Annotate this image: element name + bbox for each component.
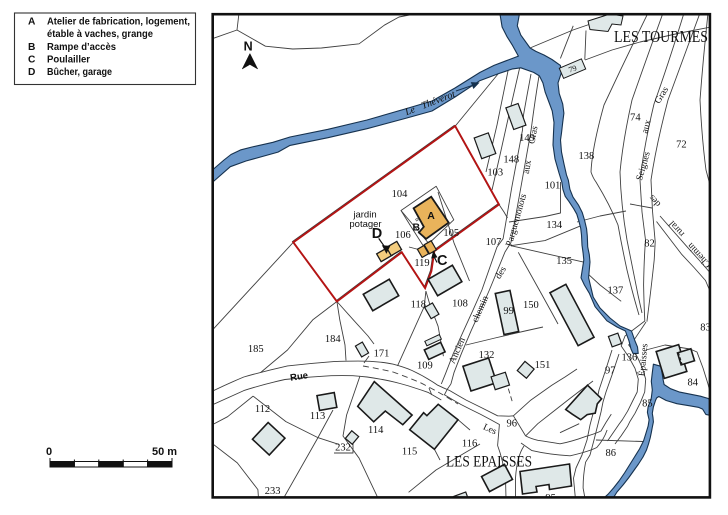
svg-text:C: C — [28, 55, 36, 66]
svg-text:Gras: Gras — [528, 125, 541, 145]
svg-text:107: 107 — [486, 237, 502, 248]
svg-text:Rue: Rue — [289, 370, 308, 384]
svg-text:116: 116 — [462, 438, 477, 449]
svg-text:C: C — [437, 253, 448, 269]
svg-text:106: 106 — [395, 230, 411, 241]
svg-text:233: 233 — [265, 486, 281, 497]
svg-text:132: 132 — [479, 350, 495, 361]
svg-text:232: 232 — [335, 442, 351, 453]
svg-text:Gras: Gras — [653, 85, 671, 106]
svg-text:114: 114 — [368, 425, 384, 436]
svg-text:101: 101 — [545, 180, 561, 191]
svg-text:des: des — [494, 265, 509, 281]
svg-text:99: 99 — [503, 306, 514, 317]
svg-text:118: 118 — [411, 299, 426, 310]
svg-text:113: 113 — [310, 411, 325, 422]
svg-text:138: 138 — [579, 151, 595, 162]
svg-text:Bûcher, garage: Bûcher, garage — [47, 67, 112, 78]
svg-text:LES EPAISSES: LES EPAISSES — [446, 454, 532, 471]
svg-text:A: A — [427, 210, 435, 222]
svg-text:135: 135 — [556, 256, 572, 267]
svg-text:105: 105 — [443, 228, 459, 239]
svg-text:115: 115 — [402, 446, 417, 457]
svg-text:Parguemonots: Parguemonots — [505, 193, 530, 248]
svg-text:134: 134 — [546, 220, 563, 231]
svg-text:96: 96 — [507, 419, 518, 430]
svg-text:Atelier de fabrication, logeme: Atelier de fabrication, logement, — [47, 17, 190, 28]
svg-text:N: N — [244, 40, 253, 54]
svg-text:109: 109 — [417, 361, 433, 372]
svg-text:119: 119 — [414, 258, 429, 269]
svg-text:148: 148 — [503, 154, 519, 165]
svg-text:B: B — [413, 221, 421, 233]
svg-text:Le Théverot: Le Théverot — [403, 89, 457, 119]
svg-text:104: 104 — [392, 189, 409, 200]
svg-text:Les: Les — [481, 422, 498, 437]
svg-text:aux: aux — [640, 119, 653, 135]
svg-text:74: 74 — [630, 113, 641, 124]
svg-text:Rampe d’accès: Rampe d’accès — [47, 42, 116, 53]
svg-text:150: 150 — [523, 300, 539, 311]
svg-text:184: 184 — [325, 334, 342, 345]
svg-text:137: 137 — [608, 285, 624, 296]
svg-text:82: 82 — [644, 239, 655, 250]
svg-text:72: 72 — [676, 140, 687, 151]
svg-text:D: D — [372, 226, 382, 242]
svg-text:Ancien: Ancien — [448, 336, 468, 365]
svg-text:LES TOURMES: LES TOURMES — [614, 27, 708, 46]
svg-text:136: 136 — [622, 353, 638, 364]
svg-text:Seignes: Seignes — [635, 150, 653, 181]
svg-text:Poulailler: Poulailler — [47, 55, 90, 66]
svg-text:97: 97 — [605, 365, 616, 376]
svg-text:B: B — [28, 42, 35, 53]
svg-text:50 m: 50 m — [152, 446, 177, 458]
svg-text:rural: rural — [667, 218, 687, 238]
svg-text:84: 84 — [687, 378, 698, 389]
svg-text:des: des — [647, 192, 663, 208]
svg-text:D: D — [28, 67, 35, 78]
svg-text:aux: aux — [522, 159, 534, 174]
svg-text:185: 185 — [248, 344, 264, 355]
svg-text:85: 85 — [642, 398, 653, 409]
svg-text:103: 103 — [487, 168, 503, 179]
svg-text:0: 0 — [46, 446, 52, 458]
svg-text:171: 171 — [374, 348, 390, 359]
svg-text:A: A — [28, 17, 36, 28]
svg-text:151: 151 — [535, 360, 551, 371]
svg-text:étable à vaches, grange: étable à vaches, grange — [47, 29, 153, 40]
svg-text:112: 112 — [255, 404, 270, 415]
svg-text:86: 86 — [606, 448, 617, 459]
svg-text:108: 108 — [452, 299, 468, 310]
